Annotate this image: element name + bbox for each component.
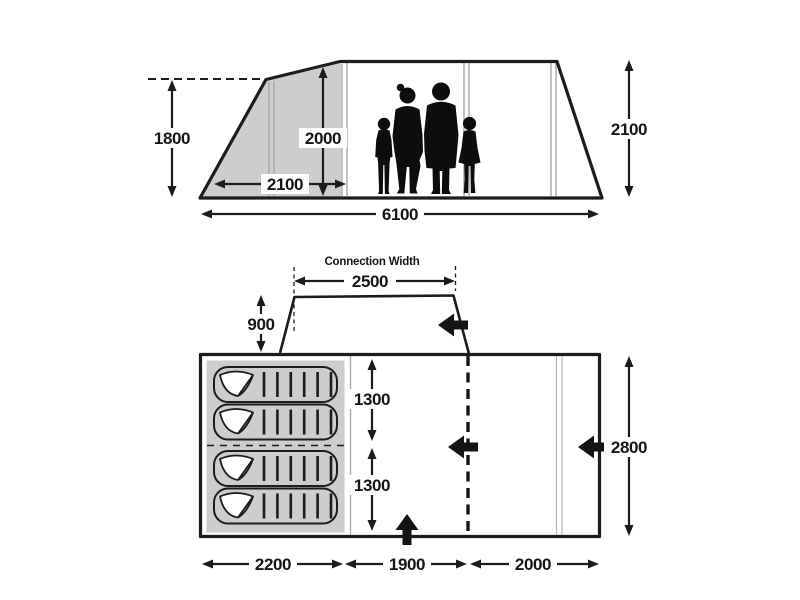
front-door-arrow-icon bbox=[396, 514, 419, 545]
rear-door-arrow-icon bbox=[578, 436, 608, 459]
dim-living-section: 1900 bbox=[345, 554, 467, 574]
total-length-label: 6100 bbox=[382, 205, 418, 224]
woman-silhouette bbox=[393, 84, 424, 194]
dim-rear-height: 2100 bbox=[605, 60, 653, 197]
front-height-label: 1800 bbox=[154, 129, 190, 148]
dim-connection-width: 2500 bbox=[294, 271, 455, 291]
family-silhouette bbox=[375, 83, 480, 195]
front-section-length-label: 2100 bbox=[267, 175, 303, 194]
connection-tunnel: Connection Width bbox=[280, 256, 469, 354]
floor-plan-view: Connection Width 2500 900 bbox=[201, 256, 655, 574]
rear-section-label: 2000 bbox=[515, 555, 551, 574]
dim-front-height: 1800 bbox=[148, 80, 196, 197]
girl-silhouette bbox=[375, 118, 392, 194]
living-section-label: 1900 bbox=[389, 555, 425, 574]
tent-dimensions-diagram: 1800 2000 2100 6100 2100 bbox=[0, 0, 800, 600]
middle-door-arrow-icon bbox=[448, 436, 478, 459]
sleeping-bag bbox=[214, 451, 337, 486]
side-elevation-view: 1800 2000 2100 6100 2100 bbox=[148, 60, 653, 224]
connection-depth-label: 900 bbox=[247, 315, 274, 334]
dim-total-length: 6100 bbox=[201, 204, 599, 224]
bedroom-section-label: 2200 bbox=[255, 555, 291, 574]
connection-width-value-label: 2500 bbox=[352, 272, 388, 291]
bed-lower-label: 1300 bbox=[354, 476, 390, 495]
sleeping-bag bbox=[214, 367, 337, 402]
rear-height-label: 2100 bbox=[611, 120, 647, 139]
bed-upper-label: 1300 bbox=[354, 390, 390, 409]
dim-total-width: 2800 bbox=[604, 356, 654, 536]
sleeping-bag bbox=[214, 405, 337, 440]
plan-seam-lines-rear bbox=[557, 356, 563, 535]
dim-connection-depth: 900 bbox=[241, 295, 282, 352]
man-silhouette bbox=[424, 83, 459, 195]
dim-bedroom-section: 2200 bbox=[202, 554, 343, 574]
diagram-svg: 1800 2000 2100 6100 2100 bbox=[0, 0, 800, 600]
dim-bed-lower: 1300 bbox=[348, 448, 396, 531]
dim-rear-section: 2000 bbox=[470, 554, 599, 574]
standing-height-label: 2000 bbox=[305, 129, 341, 148]
total-width-label: 2800 bbox=[611, 438, 647, 457]
connection-width-label: Connection Width bbox=[324, 256, 419, 268]
sleeping-bag bbox=[214, 489, 337, 524]
dim-bed-upper: 1300 bbox=[348, 359, 396, 441]
